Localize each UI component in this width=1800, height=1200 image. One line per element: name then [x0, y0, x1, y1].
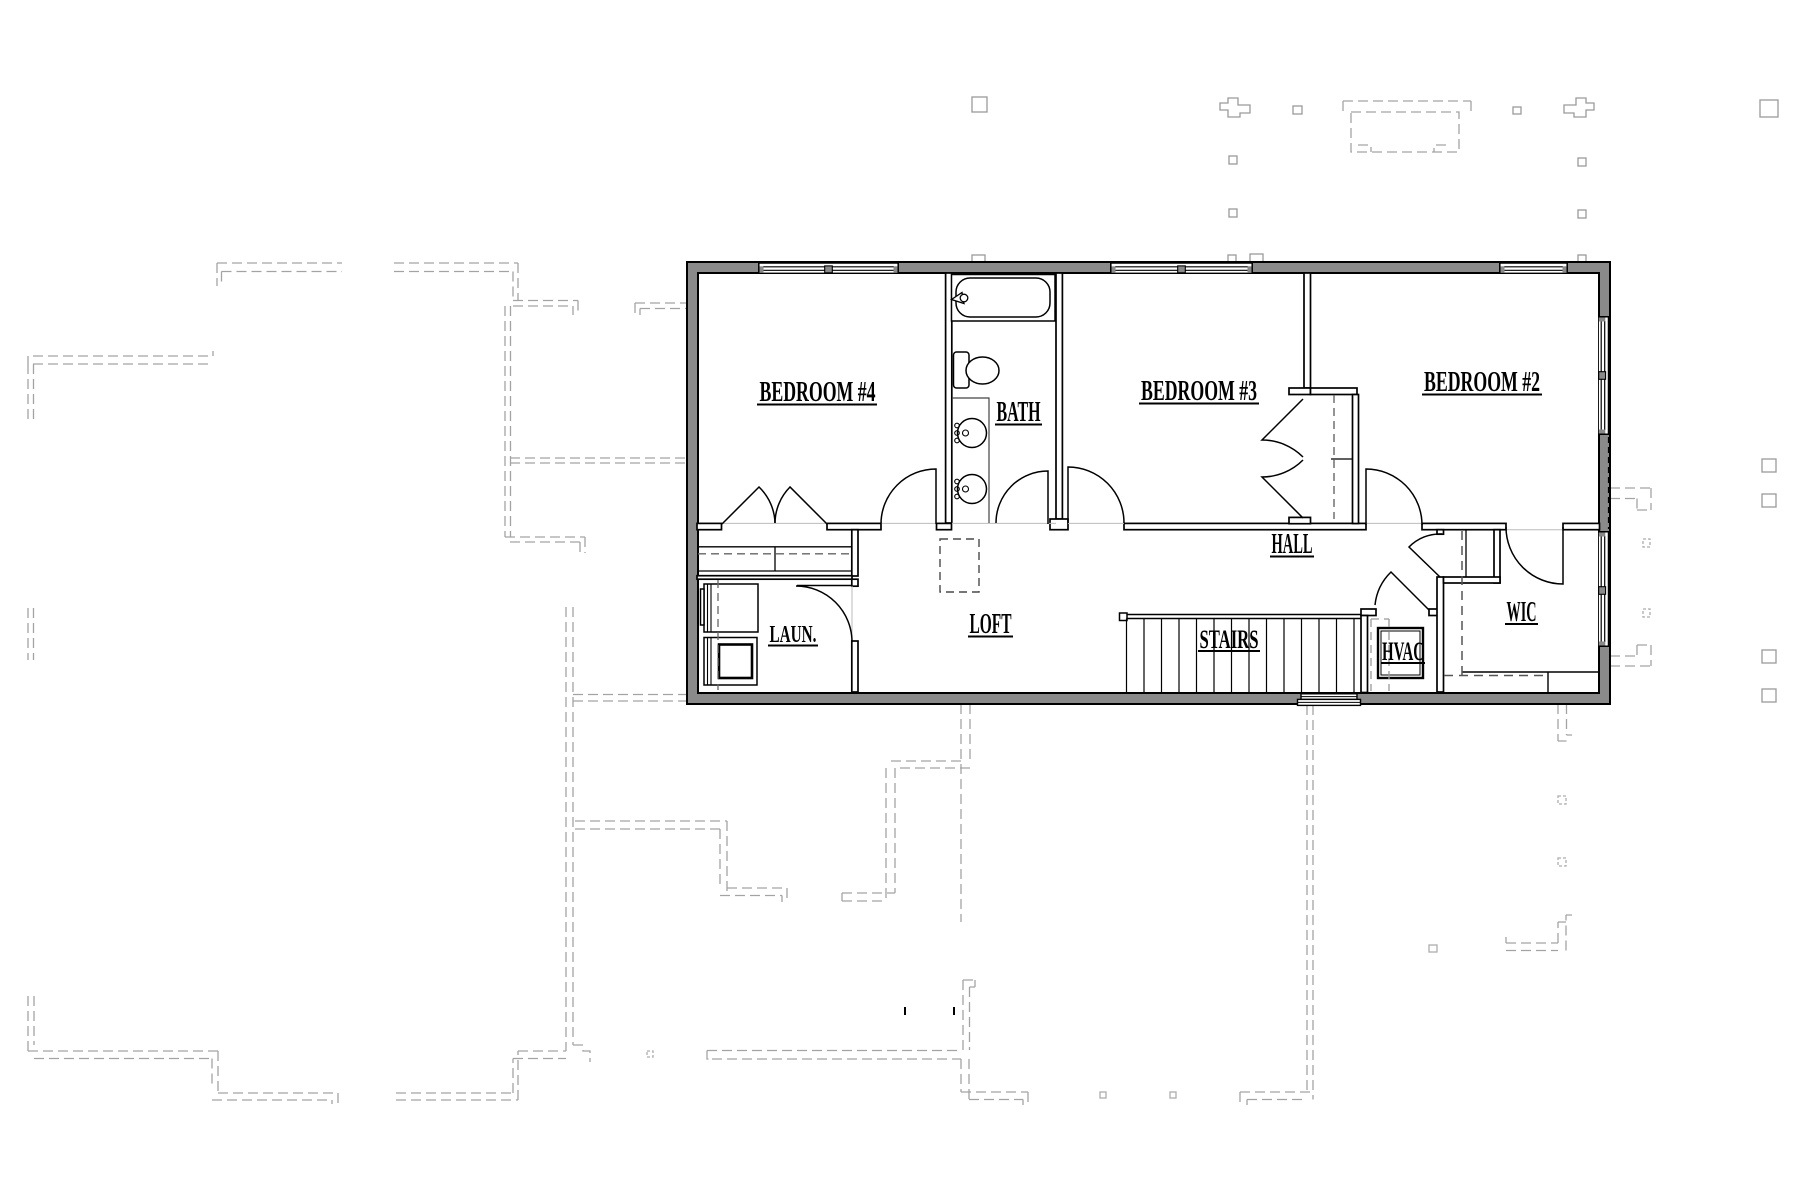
- svg-text:BEDROOM #2: BEDROOM #2: [1424, 367, 1540, 398]
- svg-text:STAIRS: STAIRS: [1200, 625, 1259, 654]
- svg-text:HVAC: HVAC: [1382, 637, 1424, 666]
- svg-text:BATH: BATH: [997, 397, 1041, 428]
- svg-text:BEDROOM #4: BEDROOM #4: [760, 377, 876, 408]
- svg-text:BEDROOM #3: BEDROOM #3: [1141, 376, 1257, 407]
- svg-text:LOFT: LOFT: [970, 609, 1012, 640]
- svg-text:LAUN.: LAUN.: [770, 622, 817, 648]
- svg-text:HALL: HALL: [1272, 529, 1313, 560]
